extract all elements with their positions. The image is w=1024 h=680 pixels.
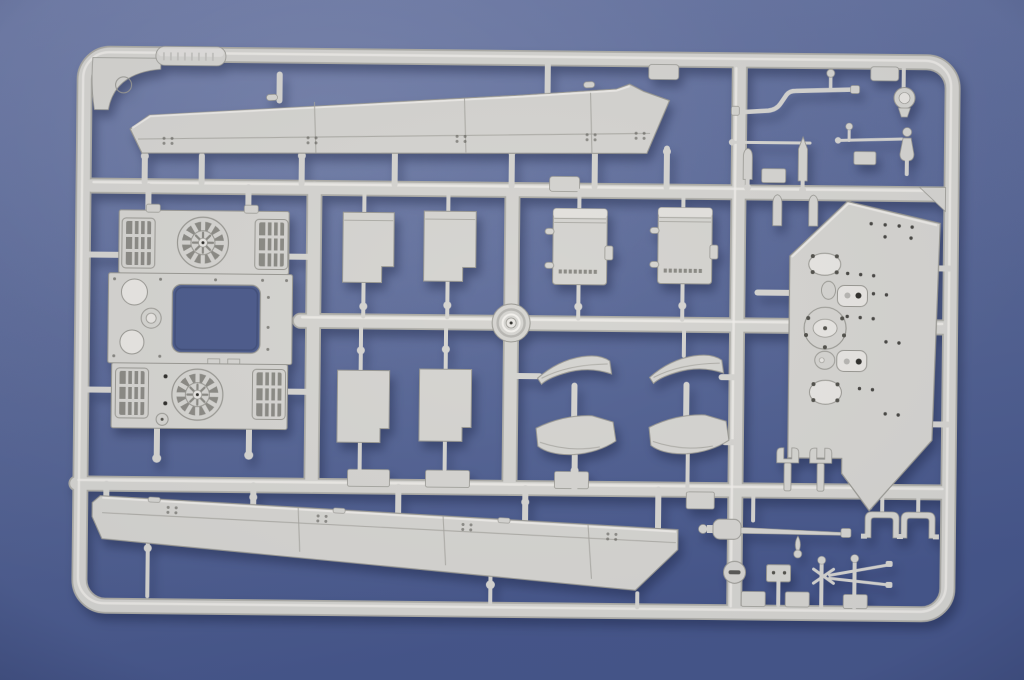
photo-canvas <box>0 0 1024 680</box>
vignette <box>0 0 1024 680</box>
sprue-photo <box>0 0 1024 680</box>
